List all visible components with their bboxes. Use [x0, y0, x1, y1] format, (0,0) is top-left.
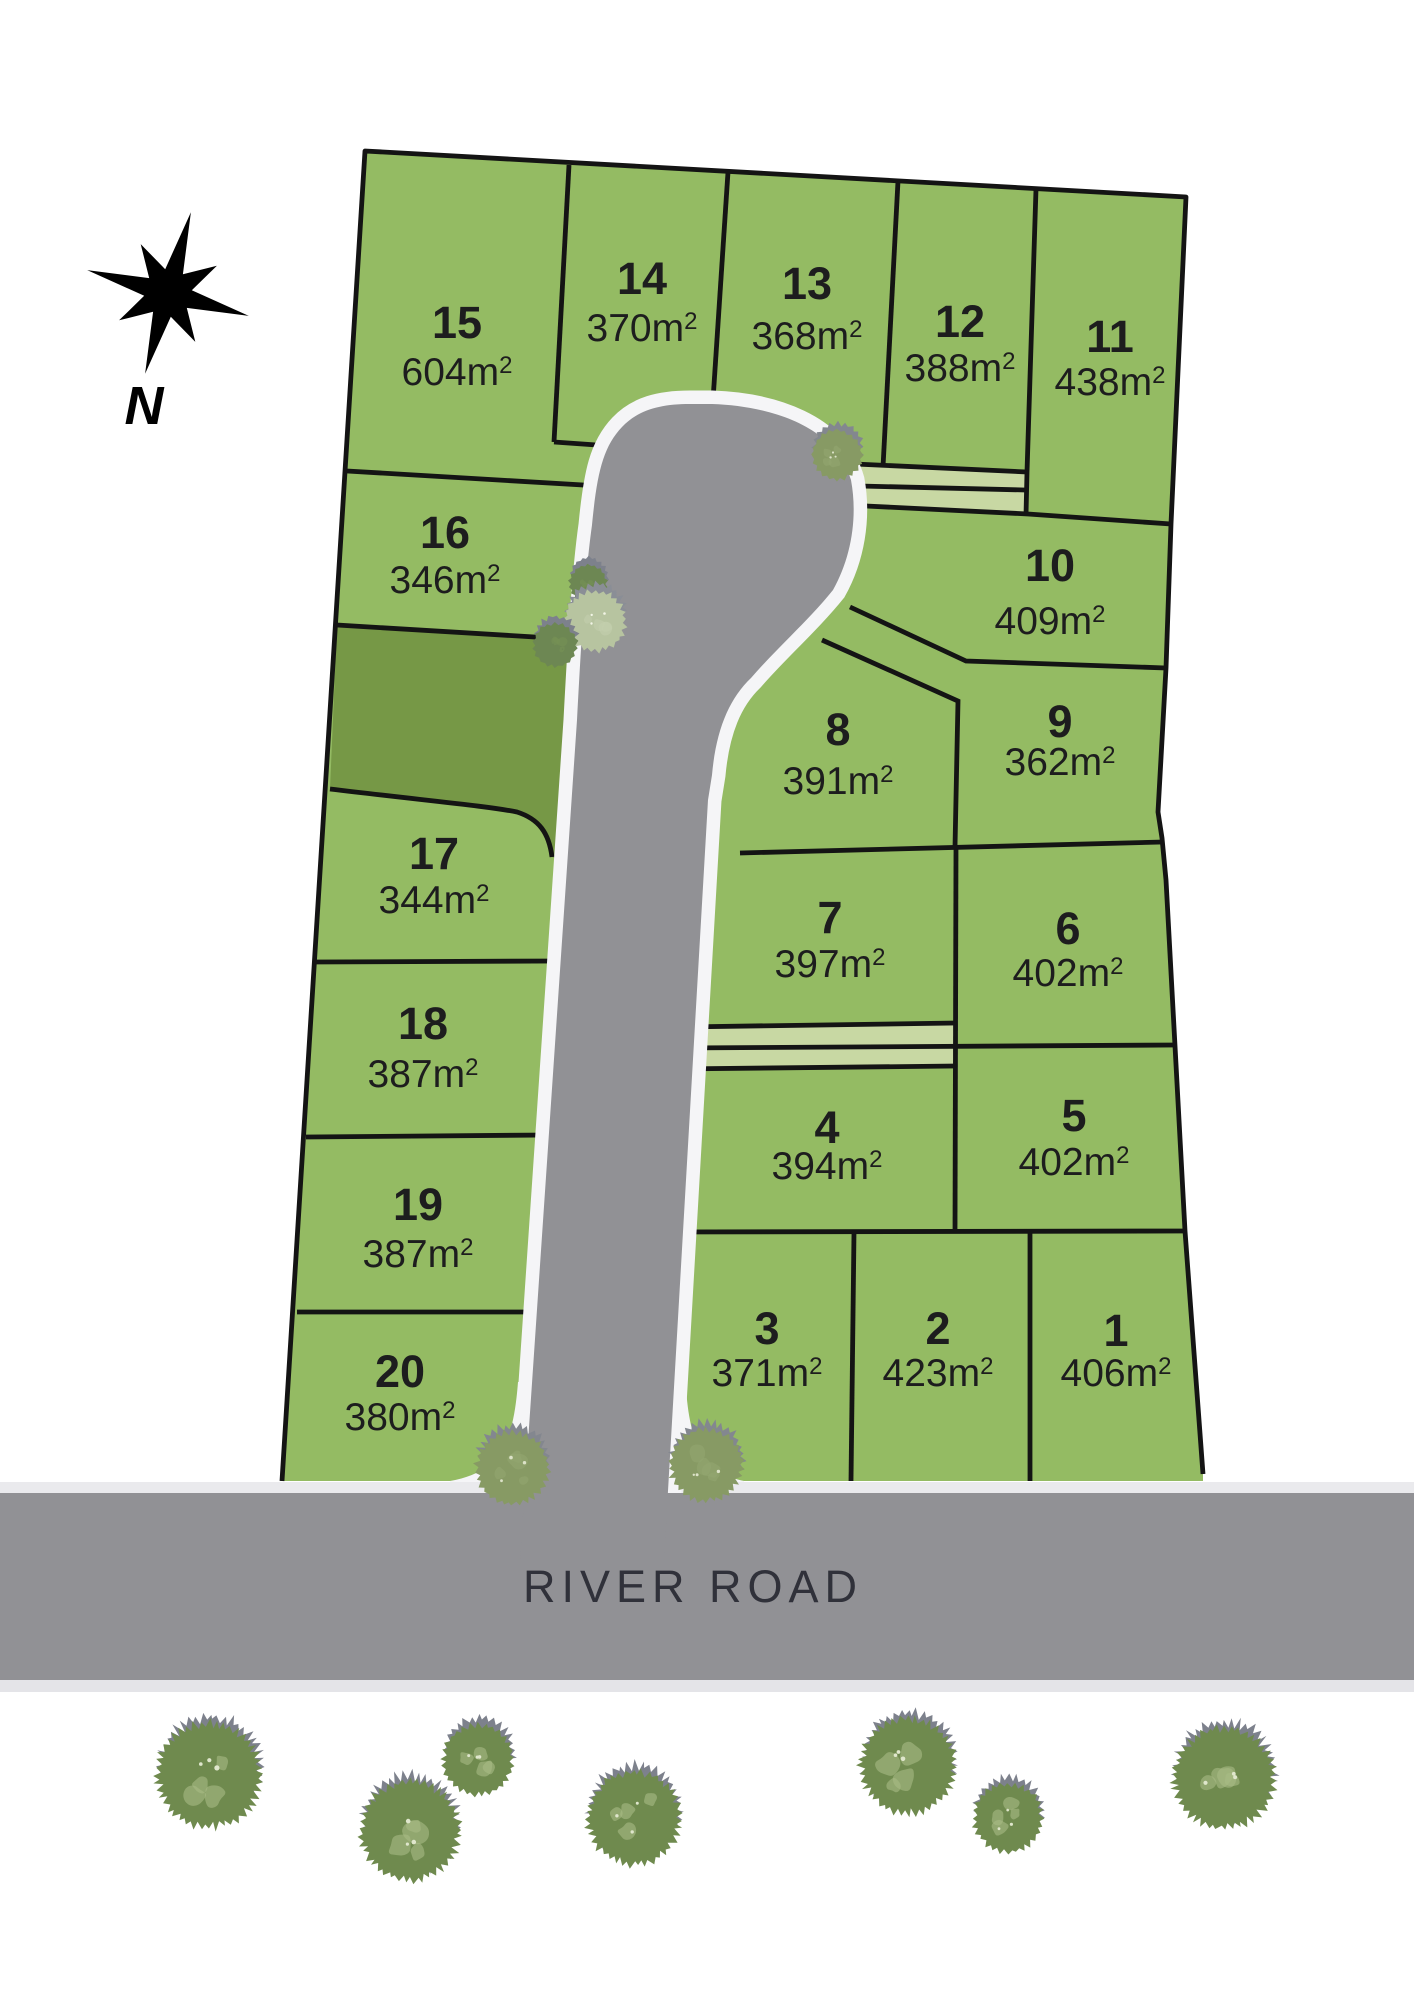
svg-text:14: 14: [617, 253, 667, 304]
svg-text:18: 18: [398, 998, 448, 1049]
svg-text:380m2: 380m2: [345, 1396, 456, 1439]
svg-text:12: 12: [935, 296, 985, 347]
svg-text:9: 9: [1047, 696, 1072, 747]
svg-text:397m2: 397m2: [775, 943, 886, 986]
svg-text:11: 11: [1086, 311, 1134, 362]
svg-text:604m2: 604m2: [402, 351, 513, 394]
svg-text:RIVER ROAD: RIVER ROAD: [523, 1561, 863, 1612]
svg-text:409m2: 409m2: [995, 600, 1106, 643]
svg-text:423m2: 423m2: [883, 1352, 994, 1395]
svg-text:402m2: 402m2: [1019, 1141, 1130, 1184]
svg-text:8: 8: [825, 704, 850, 755]
svg-text:6: 6: [1055, 903, 1080, 954]
svg-text:1: 1: [1103, 1305, 1128, 1356]
svg-text:5: 5: [1061, 1090, 1086, 1141]
svg-text:391m2: 391m2: [783, 760, 894, 803]
svg-text:10: 10: [1025, 540, 1075, 591]
svg-text:17: 17: [409, 828, 459, 879]
svg-text:362m2: 362m2: [1005, 741, 1116, 784]
svg-text:368m2: 368m2: [752, 315, 863, 358]
svg-text:7: 7: [817, 892, 842, 943]
svg-text:N: N: [125, 376, 165, 436]
svg-text:387m2: 387m2: [363, 1233, 474, 1276]
svg-text:16: 16: [420, 507, 470, 558]
svg-text:406m2: 406m2: [1061, 1352, 1172, 1395]
svg-text:388m2: 388m2: [905, 347, 1016, 390]
svg-text:387m2: 387m2: [368, 1053, 479, 1096]
svg-text:3: 3: [754, 1303, 779, 1354]
svg-text:15: 15: [432, 297, 482, 348]
svg-text:13: 13: [782, 258, 832, 309]
svg-text:2: 2: [925, 1303, 950, 1354]
svg-text:19: 19: [393, 1179, 443, 1230]
svg-text:20: 20: [375, 1346, 425, 1397]
svg-text:402m2: 402m2: [1013, 952, 1124, 995]
svg-text:438m2: 438m2: [1055, 361, 1166, 404]
svg-text:371m2: 371m2: [712, 1352, 823, 1395]
svg-text:394m2: 394m2: [772, 1145, 883, 1188]
svg-text:346m2: 346m2: [390, 559, 501, 602]
svg-text:370m2: 370m2: [587, 307, 698, 350]
svg-text:344m2: 344m2: [379, 879, 490, 922]
